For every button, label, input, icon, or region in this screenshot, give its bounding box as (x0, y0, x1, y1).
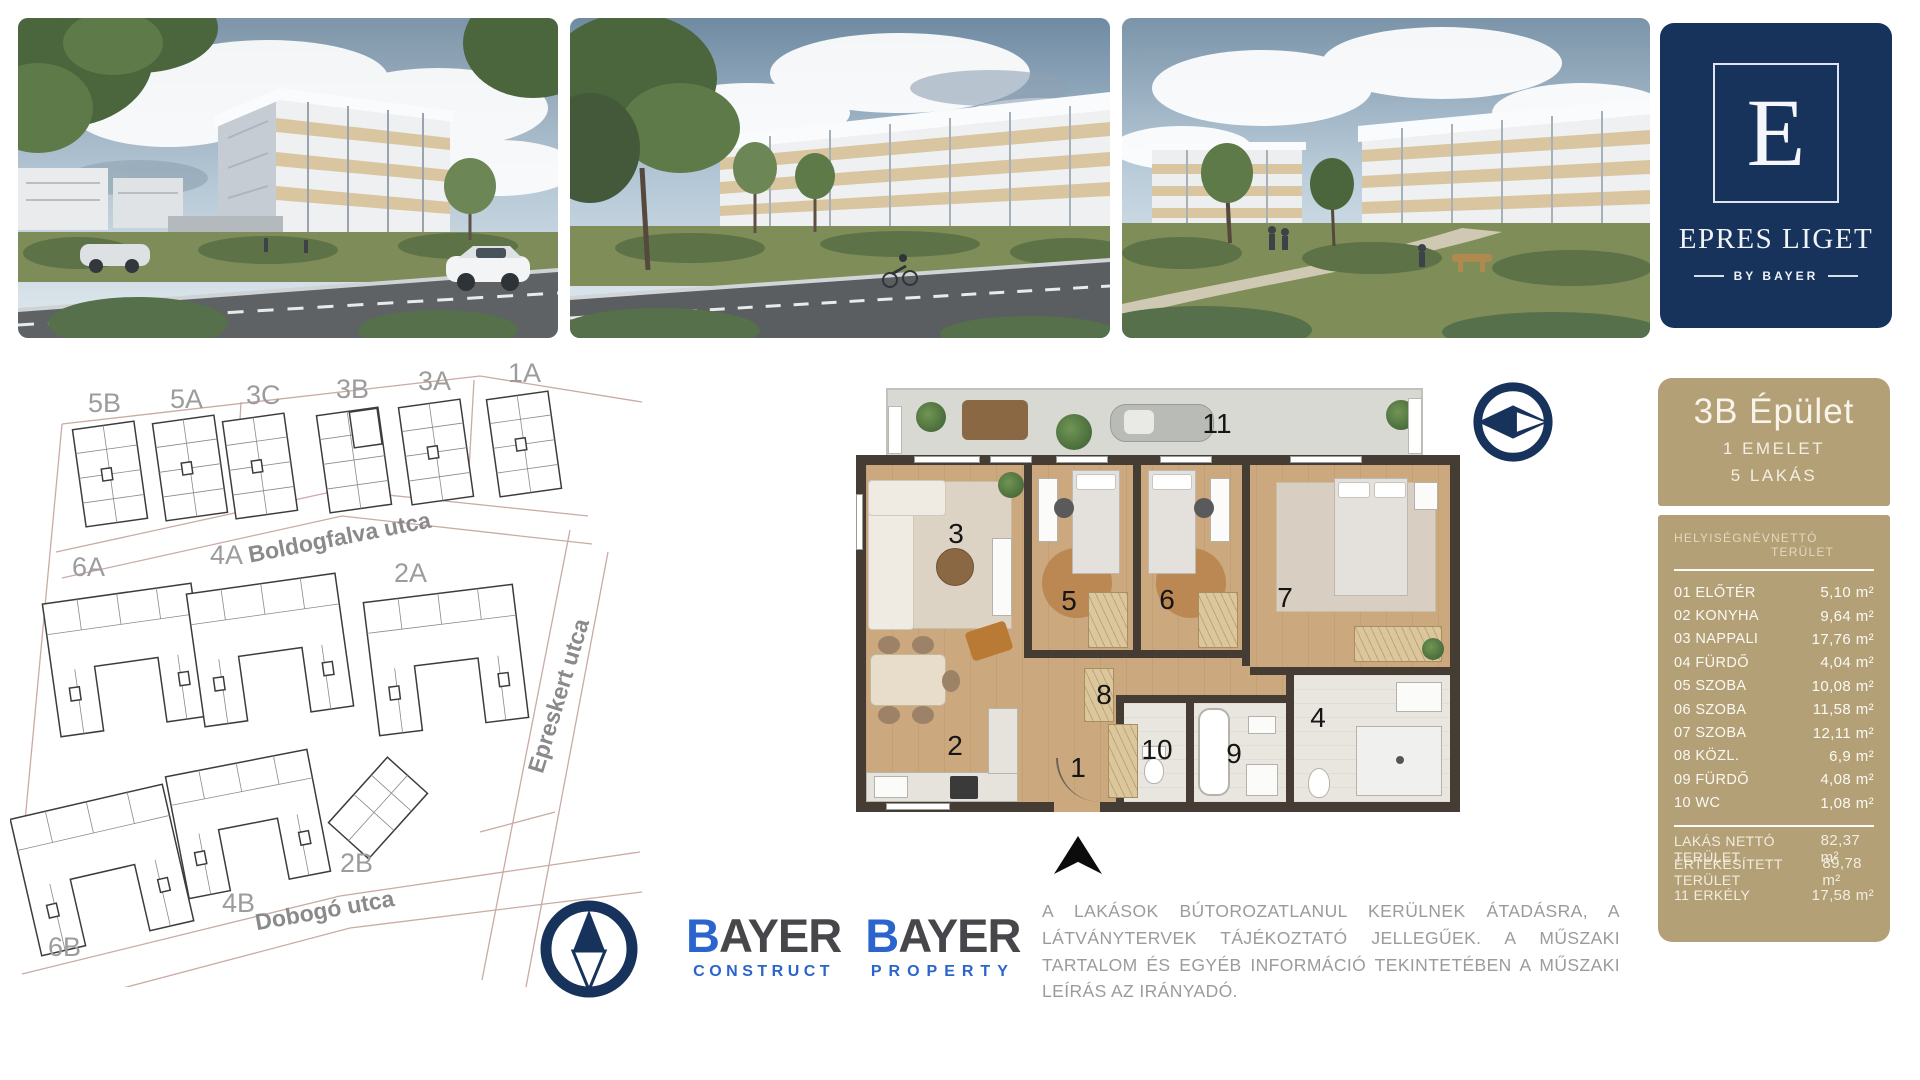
window-kitchen (886, 803, 950, 810)
bed7-plant (1422, 638, 1444, 660)
map-label-1A: 1A (508, 362, 541, 388)
compass-eye-icon (1470, 379, 1556, 465)
bed5-wardrobe (1088, 592, 1128, 648)
bayer-construct-logo: BAYER CONSTRUCT (686, 912, 841, 981)
room-area: 17,76 m² (1812, 631, 1874, 648)
wall-living-bed5 (1024, 465, 1032, 658)
table-row-07: 07 SZOBA12,11 m² (1674, 721, 1874, 744)
render-photo-1 (18, 18, 558, 338)
bayer-construct-b: B (686, 909, 719, 962)
table-row-09: 09 FÜRDŐ4,08 m² (1674, 768, 1874, 791)
wall-bed7-bath4 (1250, 667, 1450, 675)
map-building-4B (165, 749, 330, 898)
table-row-01: 01 ELŐTÉR5,10 m² (1674, 581, 1874, 604)
map-highlighted-unit (349, 408, 382, 448)
brand-monogram-letter: E (1747, 85, 1806, 181)
room-name: 08 KÖZL. (1674, 748, 1739, 764)
bayer-property-subline: PROPERTY (865, 963, 1020, 981)
unit-panel: 3B Épület 1 EMELET 5 LAKÁS HELYISÉGNÉV N… (1658, 378, 1890, 942)
bed7-pillow-2 (1374, 482, 1406, 498)
byline-dash-right (1828, 275, 1858, 277)
partner-logos: BAYER CONSTRUCT BAYER PROPERTY (686, 912, 1020, 981)
sofa-chaise (868, 480, 946, 516)
window-living (914, 456, 980, 463)
dining-chair-4 (912, 706, 934, 724)
room-name: 03 NAPPALI (1674, 631, 1758, 647)
map-label-6A: 6A (72, 552, 105, 582)
map-street-epreskert: Epreskert utca (523, 615, 595, 776)
wall-wc-bath9 (1186, 703, 1194, 802)
map-building-3B (316, 407, 391, 513)
map-label-4B: 4B (222, 888, 255, 918)
summary-name: ÉRTÉKESÍTETT TERÜLET (1674, 856, 1822, 888)
map-label-2B: 2B (340, 848, 373, 878)
room-area: 1,08 m² (1820, 795, 1874, 812)
room-name: 10 WC (1674, 795, 1720, 811)
summary-area: 89,78 m² (1822, 855, 1874, 889)
summary-area: 17,58 m² (1812, 887, 1874, 904)
table-row-02: 02 KONYHA9,64 m² (1674, 604, 1874, 627)
render-photo-1-art (18, 18, 558, 338)
tv-unit (992, 538, 1012, 616)
wall-baths-top (1116, 695, 1286, 703)
wall-bed6-bed7 (1242, 465, 1250, 666)
room-area: 11,58 m² (1813, 701, 1874, 718)
table-row-10: 10 WC1,08 m² (1674, 792, 1874, 815)
kitchen-sink (874, 776, 908, 798)
window-bed5 (1056, 456, 1108, 463)
dining-chair-2 (912, 636, 934, 654)
bed5-chair (1054, 498, 1074, 518)
room-name: 04 FÜRDŐ (1674, 655, 1749, 671)
bed6-pillow (1152, 474, 1192, 490)
room-number-6: 6 (1159, 584, 1175, 616)
summary-row-sold: ÉRTÉKESÍTETT TERÜLET89,78 m² (1674, 860, 1874, 883)
map-label-6B: 6B (48, 932, 81, 962)
map-building-1A (486, 391, 561, 497)
living-plant (998, 472, 1024, 498)
window-living-west (856, 494, 863, 550)
render-photo-2 (570, 18, 1110, 338)
balcony-plant-1 (916, 402, 946, 432)
map-building-3C (222, 413, 297, 519)
column-net-area: NETTÓ TERÜLET (1771, 531, 1874, 559)
window-bed7 (1290, 456, 1362, 463)
table-divider-bottom (1674, 825, 1874, 827)
render-photo-2-art (570, 18, 1110, 338)
north-arrow-icon (536, 896, 642, 1002)
unit-count-line: 5 LAKÁS (1658, 466, 1890, 486)
bath4-toilet (1308, 768, 1330, 798)
table-row-03: 03 NAPPALI17,76 m² (1674, 628, 1874, 651)
bath9-sink (1248, 716, 1276, 734)
brand-name: EPRES LIGET (1660, 223, 1892, 256)
map-label-4A: 4A (210, 540, 243, 570)
bayer-construct-wordmark: BAYER (686, 912, 841, 959)
room-area: 9,64 m² (1820, 608, 1874, 625)
byline-dash-left (1694, 275, 1724, 277)
room-number-11: 11 (1202, 408, 1231, 440)
bed7-pillow-1 (1338, 482, 1370, 498)
room-number-5: 5 (1061, 585, 1077, 617)
window-bed6 (1160, 456, 1212, 463)
map-label-5A: 5A (170, 384, 203, 414)
site-map: 5B 5A 3C 3B 3A 1A 6A 4A 2A 2B 4B 6B Bold… (10, 362, 650, 987)
map-label-2A: 2A (394, 558, 427, 588)
bayer-construct-ayer: AYER (719, 909, 841, 962)
room-name: 09 FÜRDŐ (1674, 772, 1749, 788)
map-building-6B (10, 784, 193, 956)
room-number-7: 7 (1277, 582, 1293, 614)
map-building-2A (363, 584, 528, 735)
dining-chair-5 (942, 670, 960, 692)
balcony-plant-2 (1056, 414, 1092, 450)
table-row-08: 08 KÖZL.6,9 m² (1674, 745, 1874, 768)
map-building-2B (328, 757, 427, 859)
balcony-planter-left (888, 406, 902, 454)
brand-monogram-frame: E (1713, 63, 1839, 203)
bed6-chair (1194, 498, 1214, 518)
room-name: 07 SZOBA (1674, 725, 1747, 741)
room-name: 05 SZOBA (1674, 678, 1747, 694)
brand-panel: E EPRES LIGET BY BAYER (1660, 23, 1892, 328)
bayer-property-wordmark: BAYER (865, 912, 1020, 959)
map-building-6A (42, 583, 209, 737)
bed5-pillow (1076, 474, 1116, 490)
summary-name: 11 ERKÉLY (1674, 887, 1750, 903)
wall-bath4-left (1286, 675, 1294, 802)
disclaimer-text: A LAKÁSOK BÚTOROZATLANUL KERÜLNEK ÁTADÁS… (1042, 898, 1620, 1005)
room-number-2: 2 (947, 730, 963, 762)
room-area: 4,08 m² (1820, 771, 1874, 788)
room-area: 10,08 m² (1812, 678, 1874, 695)
room-number-4: 4 (1310, 702, 1326, 734)
room-number-3: 3 (948, 518, 964, 550)
bayer-property-b: B (865, 909, 898, 962)
map-label-3B: 3B (336, 374, 369, 404)
kitchen-counter-vertical (988, 708, 1018, 774)
dining-chair-1 (878, 636, 900, 654)
map-label-5B: 5B (88, 388, 121, 418)
dining-table (870, 654, 946, 706)
table-divider-top (1674, 569, 1874, 571)
coffee-table (936, 548, 974, 586)
room-name: 02 KONYHA (1674, 608, 1759, 624)
washing-machine (1246, 764, 1278, 796)
entry-opening (1054, 802, 1100, 812)
render-photo-3-art (1122, 18, 1650, 338)
wall-bedrooms-hall (1024, 650, 1250, 658)
hall-wardrobe-1 (1108, 724, 1138, 798)
table-row-05: 05 SZOBA10,08 m² (1674, 675, 1874, 698)
balcony-planter-right (1408, 398, 1422, 454)
room-number-8: 8 (1096, 679, 1112, 711)
bed6-wardrobe (1198, 592, 1238, 648)
stove (950, 776, 978, 799)
room-name: 01 ELŐTÉR (1674, 585, 1756, 601)
room-area: 12,11 m² (1813, 725, 1874, 742)
byline-text: BY BAYER (1734, 269, 1819, 283)
dining-chair-3 (878, 706, 900, 724)
map-label-3C: 3C (246, 380, 281, 410)
balcony-cushion (1124, 410, 1154, 434)
floor-plan: 1 2 3 4 5 6 7 8 9 10 11 (856, 386, 1462, 886)
column-room-name: HELYISÉGNÉV (1674, 531, 1771, 559)
map-building-3A (398, 399, 473, 505)
door-living-balcony (990, 456, 1032, 463)
table-column-headers: HELYISÉGNÉV NETTÓ TERÜLET (1674, 531, 1874, 559)
map-building-5A (152, 415, 227, 521)
room-number-9: 9 (1226, 738, 1242, 770)
shower-drain (1396, 756, 1404, 764)
bed7-nightstand (1414, 482, 1438, 510)
room-name: 06 SZOBA (1674, 702, 1747, 718)
table-row-04: 04 FÜRDŐ4,04 m² (1674, 651, 1874, 674)
map-building-4A (186, 573, 353, 727)
unit-panel-table: HELYISÉGNÉV NETTÓ TERÜLET 01 ELŐTÉR5,10 … (1658, 515, 1890, 942)
bathtub (1198, 708, 1230, 796)
balcony-table-set (962, 400, 1028, 440)
render-photo-3 (1122, 18, 1650, 338)
map-street-dobogo: Dobogó utca (253, 885, 396, 935)
bath4-sink (1396, 682, 1442, 712)
room-area: 4,04 m² (1820, 654, 1874, 671)
room-area: 5,10 m² (1820, 584, 1874, 601)
bayer-property-logo: BAYER PROPERTY (865, 912, 1020, 981)
map-label-3A: 3A (418, 366, 451, 396)
map-building-5B (72, 421, 147, 527)
entrance-arrow-icon (1054, 836, 1102, 874)
table-row-06: 06 SZOBA11,58 m² (1674, 698, 1874, 721)
wall-bed5-bed6 (1133, 465, 1141, 658)
balcony (886, 388, 1423, 460)
bayer-construct-subline: CONSTRUCT (686, 963, 841, 981)
room-number-1: 1 (1070, 752, 1086, 784)
brand-byline: BY BAYER (1660, 269, 1892, 283)
bayer-property-ayer: AYER (898, 909, 1020, 962)
room-area: 6,9 m² (1829, 748, 1874, 765)
room-number-10: 10 (1141, 734, 1172, 766)
unit-title: 3B Épület (1658, 378, 1890, 432)
unit-panel-header: 3B Épület 1 EMELET 5 LAKÁS (1658, 378, 1890, 506)
unit-floor-line: 1 EMELET (1658, 439, 1890, 459)
